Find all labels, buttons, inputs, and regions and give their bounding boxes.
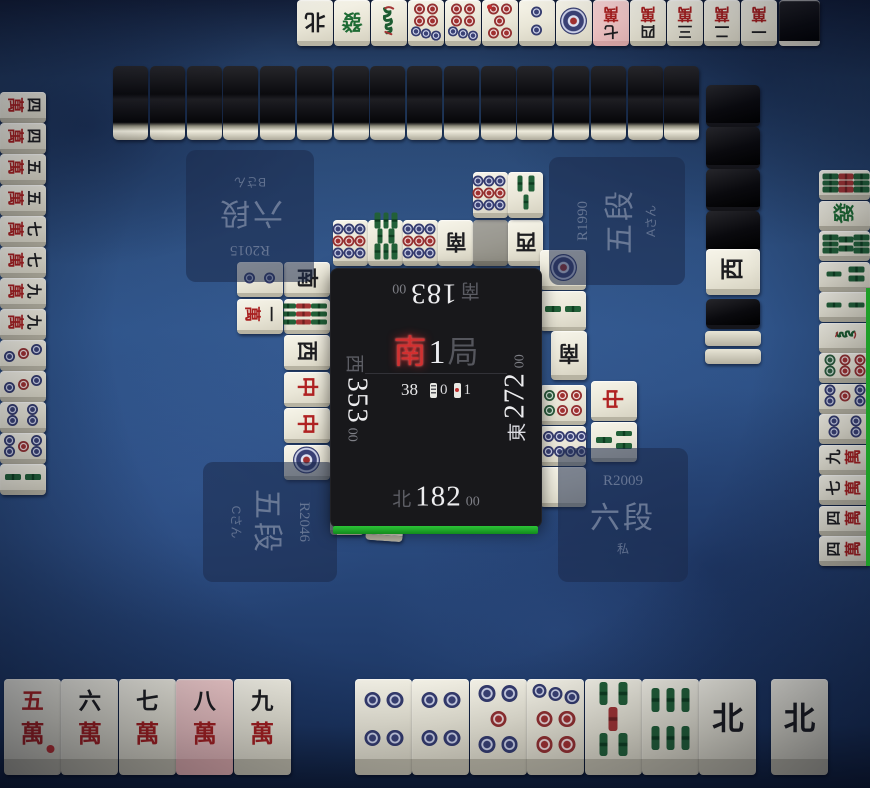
tile-zF: 發 (334, 0, 370, 46)
tile-m7[interactable]: 七萬 (119, 679, 176, 775)
tile-s8 (819, 231, 870, 261)
tile-p5[interactable] (470, 679, 527, 775)
riichi-stick-count: 1 (464, 382, 472, 399)
wall-tile (113, 66, 148, 140)
wall-tile (334, 66, 369, 140)
tile-p4 (819, 414, 870, 444)
tile-s9 (819, 170, 870, 200)
wall-tile (297, 66, 332, 140)
tile-m5: 五萬 (0, 185, 46, 216)
tile-zS: 南 (551, 331, 587, 380)
player-name: 私 (617, 540, 629, 557)
tile-zC: 中 (591, 381, 637, 421)
tile-m9[interactable]: 九萬 (234, 679, 291, 775)
wall-tile (706, 127, 760, 169)
tile-m3: 三萬 (667, 0, 703, 46)
player-rank: 六段 (590, 493, 656, 537)
seat-wind-right: 東 (503, 423, 530, 442)
tile-p3 (0, 340, 46, 371)
dora-indicator-tile: 西 (706, 249, 760, 295)
turn-indicator-bar (333, 526, 538, 534)
score-small-right: 00 (513, 354, 529, 368)
player-plate-left: R2046 五段 Cさん (203, 462, 337, 582)
tile-p7 (445, 0, 481, 46)
tile-m9: 九萬 (0, 309, 46, 340)
tile-p6 (540, 385, 586, 425)
score-left: 西 353 00 (341, 354, 374, 442)
tile-s1 (371, 0, 407, 46)
tile-p9 (403, 220, 438, 266)
player-rate: R1990 (575, 201, 592, 241)
tile-m4: 四萬 (0, 123, 46, 154)
score-small-top: 00 (392, 280, 406, 296)
tile-s2 (819, 292, 870, 322)
player-rank: 五段 (248, 489, 292, 555)
tile-p9 (333, 220, 368, 266)
tile-s8 (368, 220, 403, 266)
tile-zW: 西 (284, 335, 330, 370)
tile-m4: 四萬 (819, 536, 870, 566)
wall-tile (260, 66, 295, 140)
wall-tile (664, 66, 699, 140)
round-suffix: 局 (448, 327, 479, 372)
tile-m9: 九萬 (0, 278, 46, 309)
tile-p7[interactable] (527, 679, 584, 775)
tile-zS: 南 (438, 220, 473, 266)
wall-tile (187, 66, 222, 140)
round-number: 1 (429, 334, 446, 372)
tile-s1 (819, 323, 870, 353)
tile-m4: 四萬 (819, 506, 870, 536)
wall-slab (705, 349, 761, 364)
score-small-bottom: 00 (466, 495, 480, 511)
tile-s5[interactable] (585, 679, 642, 775)
tile-zF: 發 (819, 201, 870, 231)
score-value-top: 183 (410, 277, 457, 310)
wall-tile (150, 66, 185, 140)
tile-zC: 中 (284, 408, 330, 443)
wall-tile (481, 66, 516, 140)
wall-tile (554, 66, 589, 140)
tile-s3 (819, 262, 870, 292)
tile-s6[interactable] (642, 679, 699, 775)
player-plate-self: R2009 六段 私 (558, 448, 688, 582)
tile-m4: 四萬 (630, 0, 666, 46)
tile-m8-selected[interactable]: 八萬 (176, 679, 233, 775)
score-right: 東 272 00 (499, 354, 532, 442)
wall-slab (705, 331, 761, 346)
seat-wind-bottom: 北 (392, 485, 411, 512)
tile-m7: 七萬 (0, 216, 46, 247)
tile-p3 (0, 371, 46, 402)
score-value-right: 272 (499, 372, 532, 419)
tile-p6 (819, 353, 870, 383)
score-small-left: 00 (344, 428, 360, 442)
tile-m5: 五萬 (0, 154, 46, 185)
player-plate-top: R2015 六段 Bさん (186, 150, 314, 282)
mahjong-table: R2015 六段 Bさん R1990 五段 Aさん R2046 五段 Cさん R… (0, 0, 870, 788)
round-wind: 南 (394, 325, 427, 373)
honba-count: 0 (440, 382, 448, 399)
wall-tile (706, 169, 760, 211)
wall-tile (706, 211, 760, 253)
counters: 38 0 1 (401, 380, 471, 400)
wall-tile (223, 66, 258, 140)
tile-zP-dimmed (473, 220, 508, 266)
wall-tile (407, 66, 442, 140)
tile-p1 (556, 0, 592, 46)
tile-p4[interactable] (355, 679, 412, 775)
player-rate: R2046 (295, 502, 312, 542)
tile-p7 (408, 0, 444, 46)
player-plate-right: R1990 五段 Aさん (549, 157, 685, 285)
tile-s2 (540, 291, 586, 331)
tile-zW: 西 (508, 220, 543, 266)
player-rate: R2015 (230, 241, 270, 258)
tile-m7: 七萬 (819, 475, 870, 505)
wall-tile (628, 66, 663, 140)
wall-tile (591, 66, 626, 140)
tile-m7-selected: 七萬 (593, 0, 629, 46)
thousand-point-stick-icon (454, 383, 461, 398)
tile-p4 (0, 402, 46, 433)
player-rank: 五段 (595, 188, 639, 254)
tile-p2 (519, 0, 555, 46)
tile-m1: 一萬 (237, 299, 283, 334)
panel-divider (365, 373, 507, 374)
score-top: 南 183 00 (392, 277, 480, 310)
tile-p5 (482, 0, 518, 46)
riichi-indicator-bar (866, 288, 870, 566)
tile-m9: 九萬 (819, 445, 870, 475)
tile-zC: 中 (284, 372, 330, 407)
player-name: Cさん (228, 506, 245, 539)
wall-tile (370, 66, 405, 140)
tile-m5[interactable]: 五萬 (4, 679, 61, 775)
tile-s2 (0, 464, 46, 495)
wall-tile (517, 66, 552, 140)
tile-m6[interactable]: 六萬 (61, 679, 118, 775)
tile-facedown (779, 0, 820, 46)
score-bottom: 北 182 00 (392, 481, 480, 514)
tile-zN[interactable]: 北 (699, 679, 756, 775)
player-rate: R2009 (603, 473, 643, 490)
hundred-point-stick-icon (430, 383, 437, 398)
seat-wind-left: 西 (343, 354, 370, 373)
tile-p5 (819, 384, 870, 414)
tiles-remaining-count: 38 (401, 380, 418, 400)
wall-tile (706, 85, 760, 127)
player-name: Aさん (642, 205, 659, 237)
tile-zN[interactable]: 北 (771, 679, 828, 775)
seat-wind-top: 南 (461, 279, 480, 306)
tile-m1: 一萬 (741, 0, 777, 46)
tile-s3 (508, 172, 543, 218)
wall-tile (706, 299, 760, 329)
tile-p5 (0, 433, 46, 464)
tile-s9 (284, 299, 330, 334)
center-info-panel: 南 183 00 東 272 00 北 182 00 西 353 00 南 1 … (330, 268, 542, 528)
tile-m7: 七萬 (0, 247, 46, 278)
player-name: Bさん (234, 174, 266, 191)
tile-p9 (473, 172, 508, 218)
score-value-left: 353 (341, 377, 374, 424)
round-indicator: 南 1 局 (394, 325, 479, 373)
tile-m4: 四萬 (0, 92, 46, 123)
tile-zN: 北 (297, 0, 333, 46)
score-value-bottom: 182 (415, 481, 462, 514)
player-rank: 六段 (217, 194, 283, 238)
tile-m2: 二萬 (704, 0, 740, 46)
wall-tile (444, 66, 479, 140)
tile-p4[interactable] (412, 679, 469, 775)
